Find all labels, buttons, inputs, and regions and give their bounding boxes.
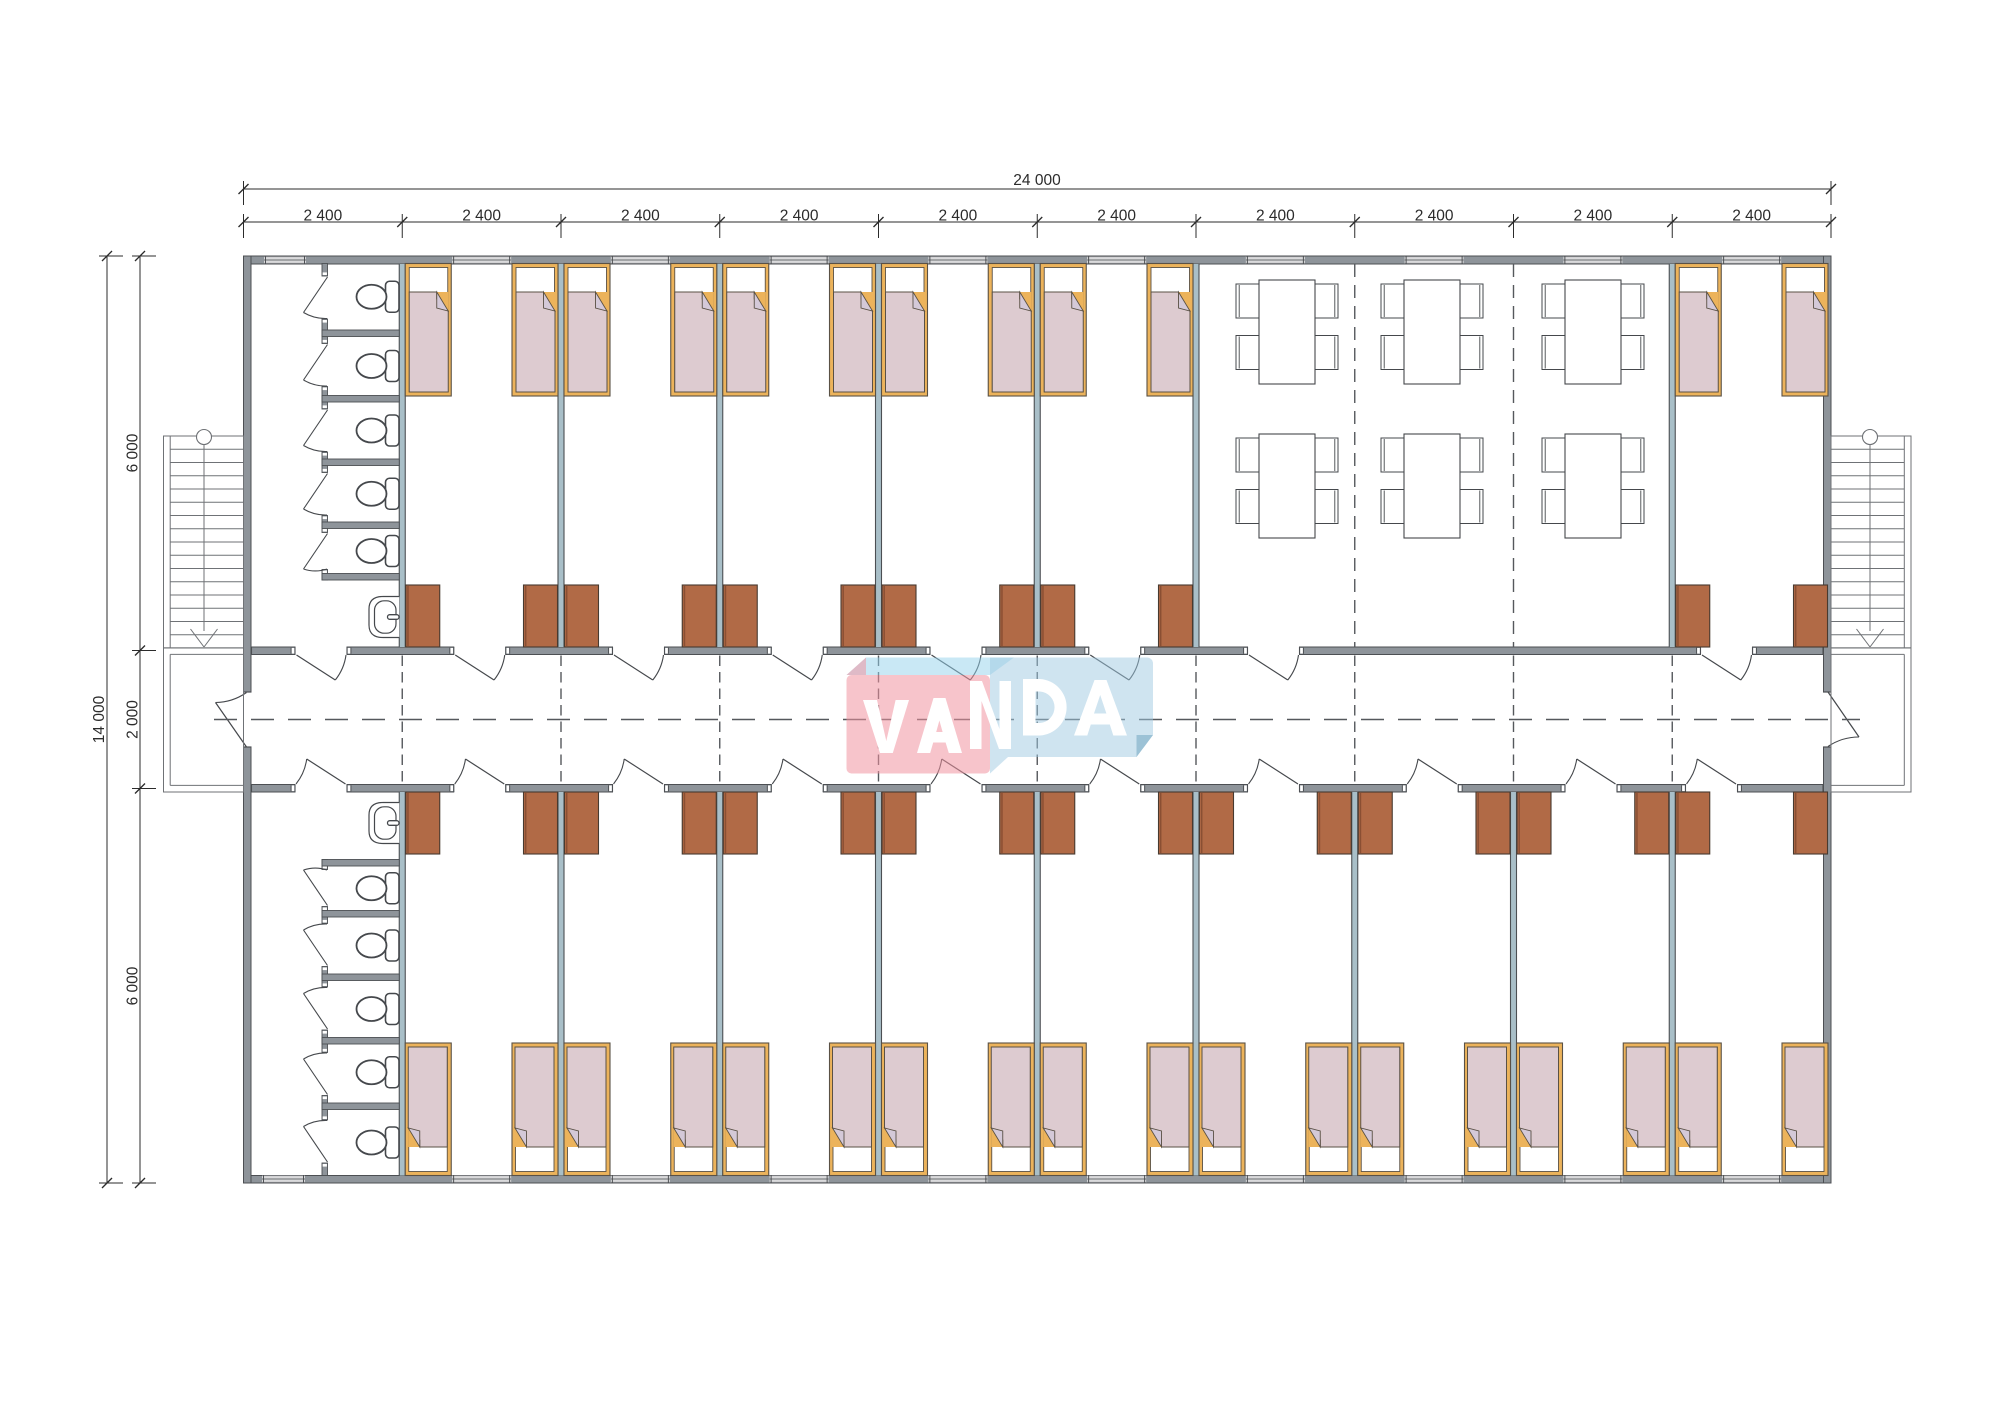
svg-text:2 400: 2 400	[780, 208, 819, 225]
svg-text:14 000: 14 000	[91, 695, 108, 743]
svg-text:2 400: 2 400	[938, 208, 977, 225]
svg-text:2 400: 2 400	[462, 208, 501, 225]
svg-text:2 400: 2 400	[303, 208, 342, 225]
svg-text:24 000: 24 000	[1013, 172, 1061, 189]
svg-text:2 400: 2 400	[1097, 208, 1136, 225]
svg-text:2 400: 2 400	[621, 208, 660, 225]
svg-text:6 000: 6 000	[125, 966, 142, 1005]
svg-text:2 400: 2 400	[1732, 208, 1771, 225]
svg-text:6 000: 6 000	[125, 433, 142, 472]
svg-text:2 000: 2 000	[125, 700, 142, 739]
svg-text:2 400: 2 400	[1573, 208, 1612, 225]
svg-text:2 400: 2 400	[1256, 208, 1295, 225]
svg-text:2 400: 2 400	[1415, 208, 1454, 225]
